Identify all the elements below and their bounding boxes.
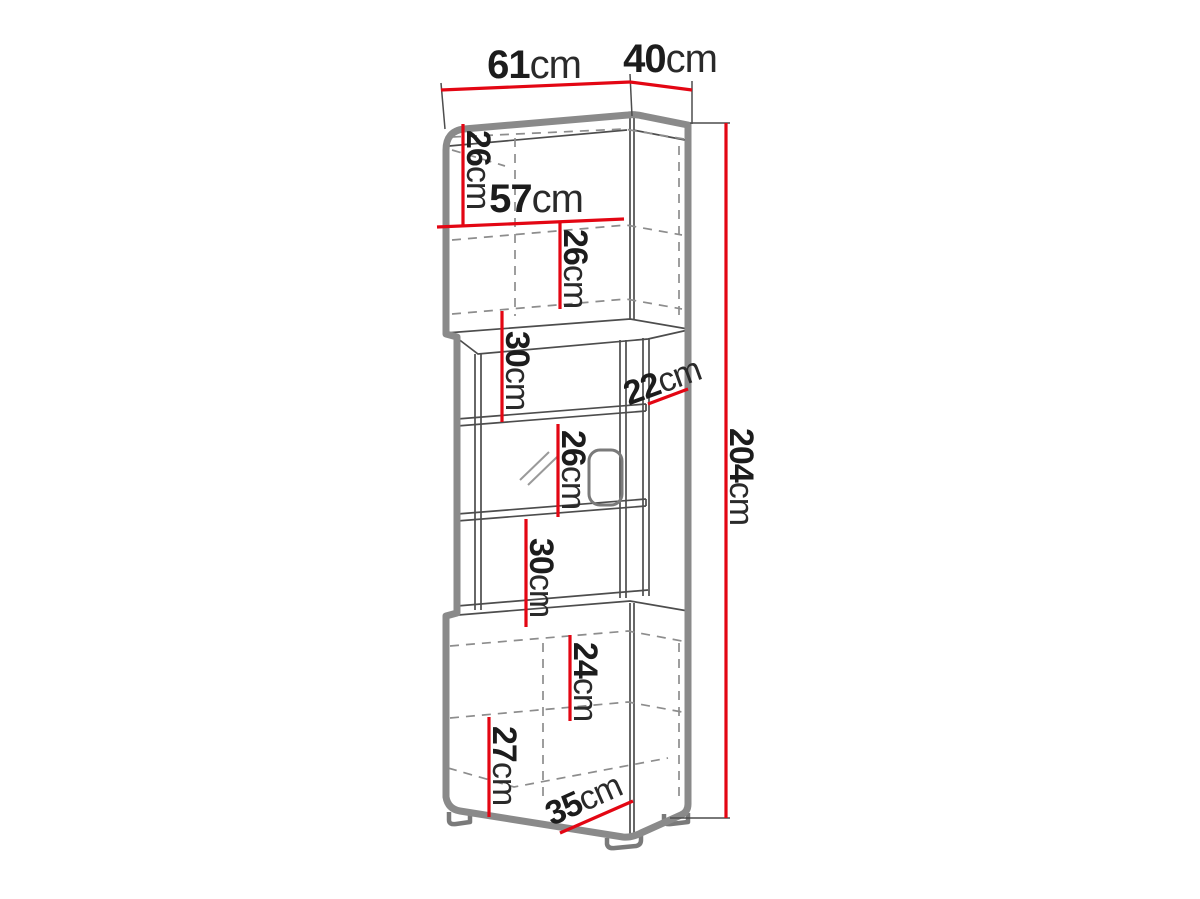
diagram-svg: 61cm 40cm 26cm 57cm 26cm 30cm 22cm 204cm… xyxy=(0,0,1200,899)
cabinet-dimension-diagram: 61cm 40cm 26cm 57cm 26cm 30cm 22cm 204cm… xyxy=(0,0,1200,899)
bottom-dashed-shelf xyxy=(450,702,682,718)
bottom-dashed-top xyxy=(450,631,682,646)
middle-top-face xyxy=(457,330,688,354)
dim-label-top-depth: 40cm xyxy=(623,37,717,81)
dim-line-top-depth xyxy=(630,82,692,90)
middle-front-left-edge xyxy=(475,354,481,610)
dim-label-top-width: 61cm xyxy=(487,43,581,87)
dim-label-total-height: 204cm xyxy=(722,428,760,525)
dim-label-bottom-lower-height: 27cm xyxy=(485,726,523,805)
bottom-dashed-floor xyxy=(448,758,668,787)
door-handle xyxy=(589,450,622,505)
dim-label-upper-inner-height: 26cm xyxy=(556,229,594,308)
dim-label-lower-open-gap: 30cm xyxy=(522,538,560,617)
glass-shelf-upper xyxy=(457,404,646,426)
dim-label-glass-shelf-gap: 26cm xyxy=(554,430,592,509)
dim-label-middle-depth: 22cm xyxy=(619,350,706,413)
dim-label-bottom-inner-height: 24cm xyxy=(566,642,604,721)
dim-label-upper-open-gap: 30cm xyxy=(498,331,536,410)
dim-label-upper-inner-width: 57cm xyxy=(489,177,583,221)
upper-front-right-edge xyxy=(630,118,634,320)
glass-hatch-icon xyxy=(520,452,557,485)
upper-bottom-edge xyxy=(446,319,688,333)
